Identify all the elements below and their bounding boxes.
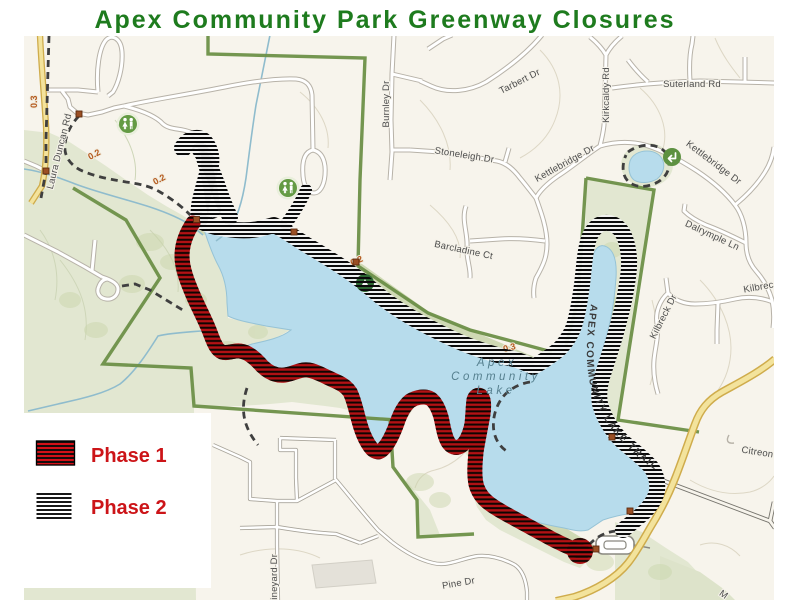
- svg-text:Vineyard Dr: Vineyard Dr: [269, 554, 280, 600]
- svg-text:0.3: 0.3: [29, 95, 39, 108]
- svg-text:Phase 2: Phase 2: [91, 497, 167, 519]
- svg-text:Phase 1: Phase 1: [91, 445, 167, 467]
- svg-text:Kirkcaldy Rd: Kirkcaldy Rd: [601, 67, 612, 123]
- svg-text:Suterland Rd: Suterland Rd: [663, 79, 721, 90]
- svg-text:Community: Community: [451, 371, 541, 383]
- svg-text:Burnley Dr: Burnley Dr: [381, 81, 392, 128]
- svg-text:Apex: Apex: [476, 357, 517, 369]
- svg-text:Apex Community Park Greenway C: Apex Community Park Greenway Closures: [94, 6, 675, 34]
- svg-text:Lake: Lake: [477, 385, 516, 397]
